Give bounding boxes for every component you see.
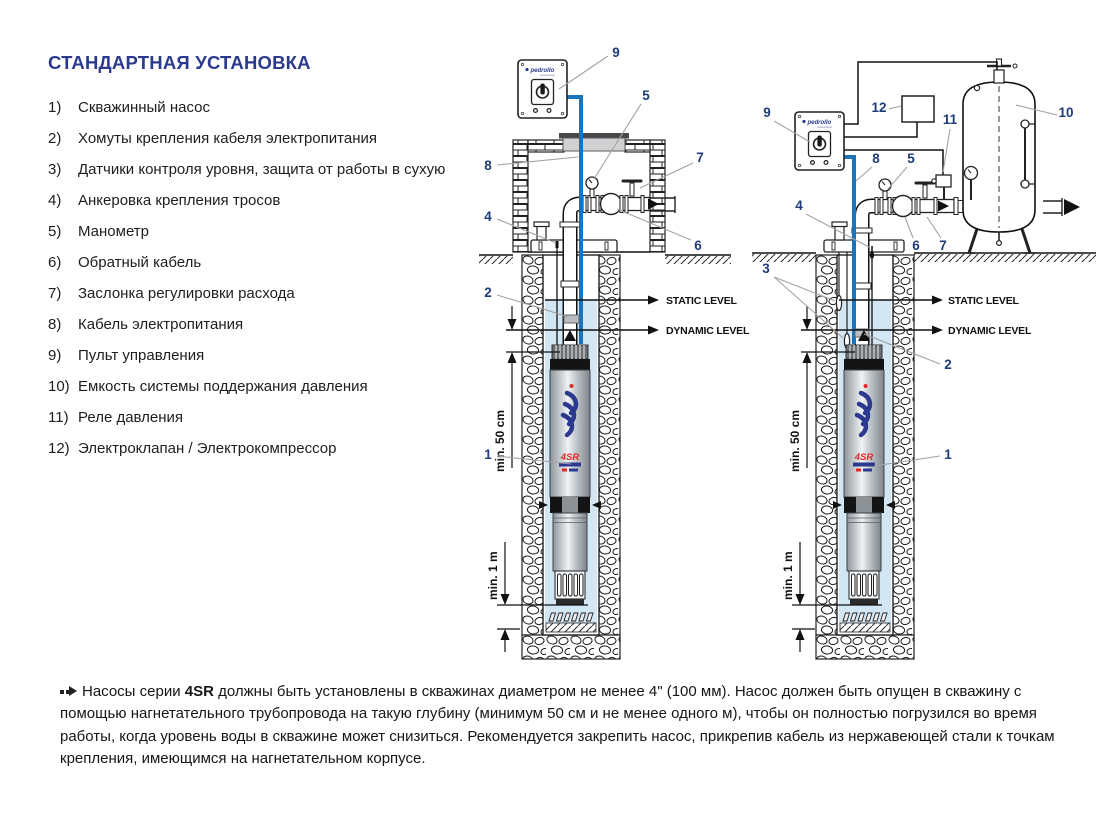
callout-left-1: 1 (484, 447, 492, 462)
callout-right-4: 4 (795, 198, 803, 213)
callout-left-6: 6 (694, 238, 702, 253)
electrovalve-box (902, 96, 934, 122)
callout-left-5: 5 (642, 88, 650, 103)
gate-valve-icon (923, 185, 927, 198)
callout-right-2: 2 (944, 357, 952, 372)
dimension-min-submersion-left: min. 50 cm (493, 306, 517, 472)
dimension-min-submersion-right: min. 50 cm (788, 306, 812, 472)
outlet-flow-arrow-icon (1064, 199, 1080, 215)
pressure-tank (963, 59, 1080, 253)
note-arrow-icon (60, 686, 77, 697)
callout-left-7: 7 (696, 150, 704, 165)
gate-valve-icon (630, 183, 634, 196)
callout-left-8: 8 (484, 158, 492, 173)
manual-page: СТАНДАРТНАЯ УСТАНОВКА 1)Скважинный насос… (0, 0, 1109, 821)
callout-right-3: 3 (762, 261, 770, 276)
diagram-left-basic-installation: STATIC LEVEL DYNAMIC LEVEL min. 50 cm (479, 45, 750, 659)
check-valve-icon (893, 196, 914, 217)
min-50cm-label-right: min. 50 cm (788, 410, 802, 472)
callout-left-4: 4 (484, 209, 492, 224)
callout-right-6: 6 (912, 238, 920, 253)
callout-right-9: 9 (763, 105, 771, 120)
check-valve-icon (601, 194, 622, 215)
min-50cm-label-left: min. 50 cm (493, 410, 507, 472)
callout-right-12: 12 (871, 100, 886, 115)
callout-right-10: 10 (1058, 105, 1073, 120)
static-level-label-left: STATIC LEVEL (666, 295, 737, 307)
callout-right-7: 7 (939, 238, 947, 253)
callout-right-5: 5 (907, 151, 915, 166)
callout-left-9: 9 (612, 45, 620, 60)
dynamic-level-label-left: DYNAMIC LEVEL (666, 325, 750, 337)
static-level-label-right: STATIC LEVEL (948, 295, 1019, 307)
dynamic-level-label-right: DYNAMIC LEVEL (948, 325, 1032, 337)
min-1m-label-right: min. 1 m (781, 551, 795, 600)
note-pump-series: 4SR (185, 683, 214, 700)
diagram-right-pressure-system: STATIC LEVEL DYNAMIC LEVEL min. 50 cm (752, 59, 1096, 659)
note-text-lead: Насосы серии (82, 683, 185, 700)
ground-hatch (479, 256, 513, 264)
pressure-switch (932, 175, 951, 199)
footnote: Насосы серии 4SR должны быть установлены… (60, 681, 1060, 771)
callout-right-8: 8 (872, 151, 880, 166)
rope-anchor (556, 241, 559, 248)
callout-right-11: 11 (943, 112, 958, 127)
rope-anchor (870, 251, 874, 259)
min-1m-label-left: min. 1 m (486, 551, 500, 600)
callout-left-2: 2 (484, 285, 492, 300)
callout-right-1: 1 (944, 447, 952, 462)
wellhead-pit (513, 133, 665, 252)
